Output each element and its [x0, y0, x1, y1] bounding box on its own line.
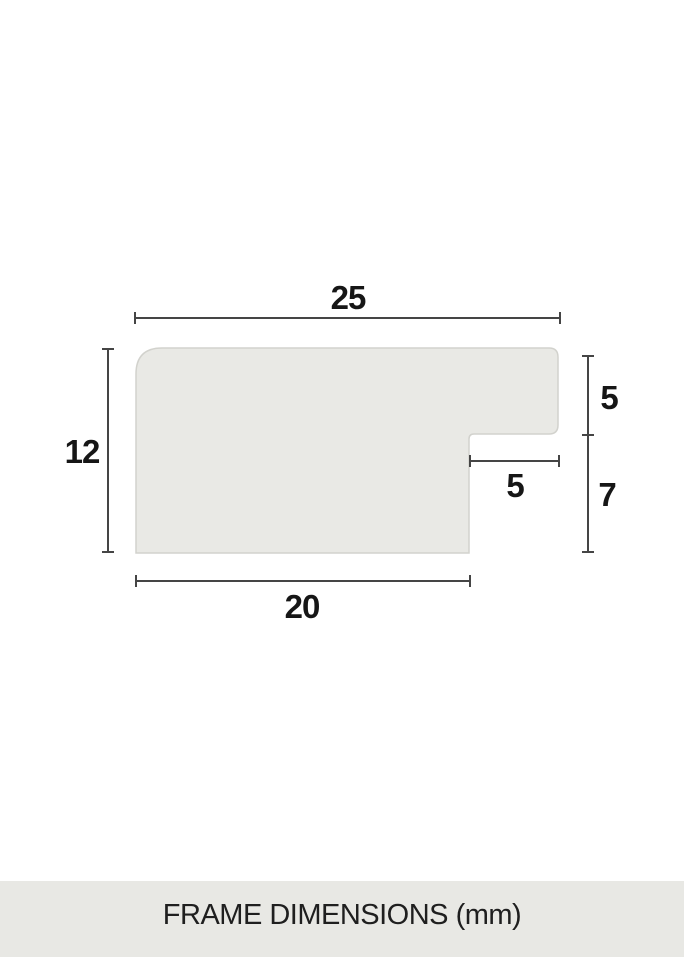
dim-bottom-width-label: 20	[285, 588, 320, 625]
dim-inner-width-line	[470, 455, 559, 467]
dim-inner-width: 5	[470, 455, 559, 504]
dim-bottom-width: 20	[136, 575, 470, 625]
profile-diagram: 25 12 5 7 5 20	[0, 0, 684, 957]
dim-bottom-width-line	[136, 575, 470, 587]
footer-band: FRAME DIMENSIONS (mm)	[0, 881, 684, 957]
frame-dimensions-page: 25 12 5 7 5 20 FRAME DIMENSIONS (mm)	[0, 0, 684, 957]
dim-right-heights-line	[582, 356, 594, 552]
dim-left-height-line	[102, 349, 114, 552]
dim-right-lower-label: 7	[598, 476, 615, 513]
dim-inner-width-label: 5	[506, 467, 524, 504]
dim-right-upper-label: 5	[600, 379, 618, 416]
dim-top-width: 25	[135, 279, 560, 324]
dim-top-width-label: 25	[331, 279, 366, 316]
footer-caption: FRAME DIMENSIONS (mm)	[163, 901, 521, 930]
moulding-profile-shape	[136, 348, 558, 553]
dim-right-heights: 5 7	[582, 356, 618, 552]
dim-left-height: 12	[65, 349, 114, 552]
dim-left-height-label: 12	[65, 433, 100, 470]
